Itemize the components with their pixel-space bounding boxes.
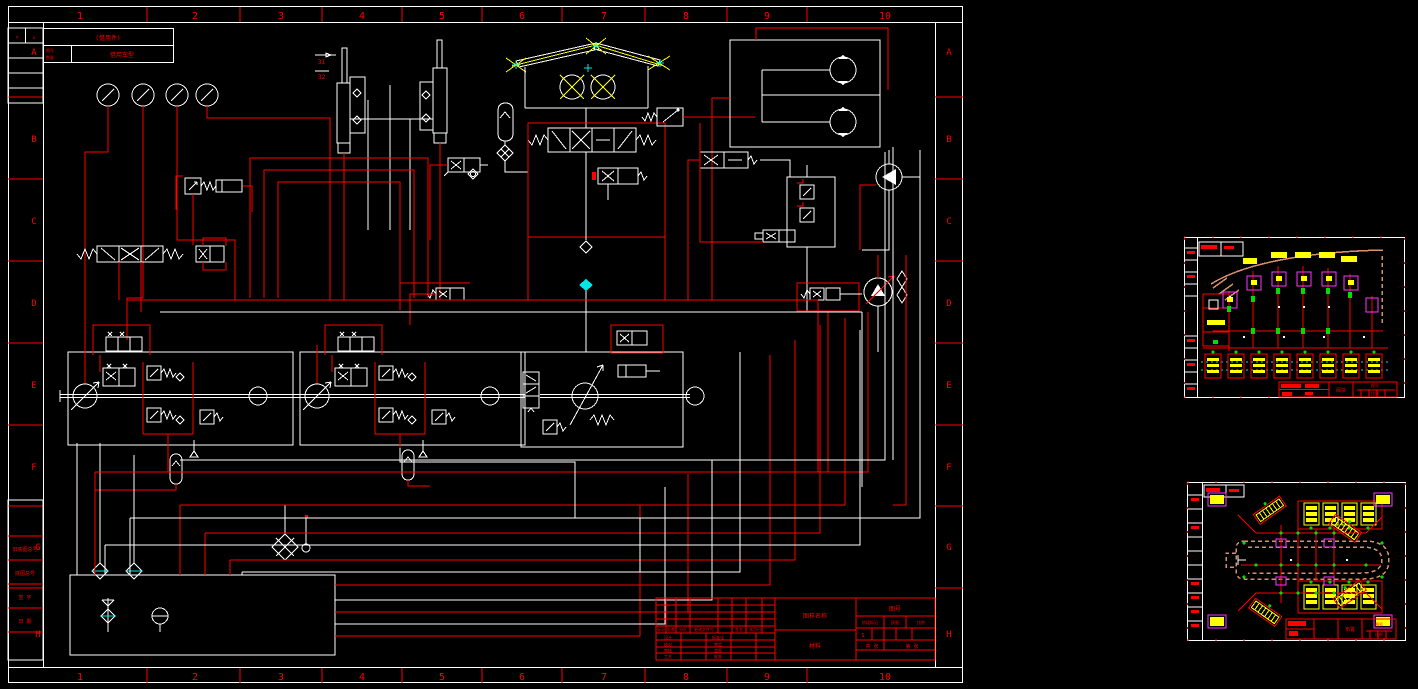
pump-unit-1 <box>60 325 293 472</box>
sign-row-label: 标准化 <box>712 634 724 640</box>
sheet-total: 共 张 <box>865 643 878 650</box>
zone-row-label: B <box>946 135 951 145</box>
zone-col-label: 1 <box>77 11 83 22</box>
main-drawing-canvas[interactable]: 1 2 3 4 5 6 7 8 9 10 1 2 3 4 5 6 7 8 9 1… <box>0 0 965 689</box>
margin-label: 日 期 <box>18 619 31 625</box>
pump-unit-2 <box>292 325 525 460</box>
zone-col-label: 4 <box>359 11 365 22</box>
mini2-scale-label: 比例 <box>1375 631 1383 637</box>
zone-col-label: 9 <box>764 11 770 22</box>
zone-row-label: D <box>946 299 951 309</box>
zone-row-label: E <box>946 381 951 391</box>
crane-mechanism <box>506 38 670 128</box>
pilot-valve-mid <box>400 283 470 325</box>
suspension-cylinder-31: 31 32 <box>315 48 365 300</box>
mini2-title-text: 布置 <box>1345 626 1355 633</box>
margin-arrow-down: ↓ <box>32 34 36 41</box>
pilot-valve-small-left <box>196 238 226 270</box>
directional-valve-left <box>77 246 183 312</box>
hydraulic-motor-icon <box>830 55 856 137</box>
piping-white <box>105 147 920 624</box>
mini-drawing-1-canvas[interactable]: 阀块 图号 比例 <box>1183 236 1409 405</box>
sign-row-label: 设计 <box>664 634 672 640</box>
zone-row-label: A <box>31 48 37 58</box>
reducing-valve-unit <box>176 176 252 245</box>
zone-ruler-bottom: 1 2 3 4 5 6 7 8 9 10 <box>77 672 891 683</box>
return-filter-2 <box>126 455 142 579</box>
sheet-no: 第 张 <box>905 643 918 650</box>
title-no-cell: 图号 <box>889 606 901 613</box>
solenoid-pump-unit <box>797 255 907 472</box>
zone-row-label: G <box>946 543 951 553</box>
zone-col-label: 9 <box>764 672 770 683</box>
rev-header-cell: 分区 <box>679 626 687 632</box>
rev-header-cell: 处数 <box>667 626 675 632</box>
zone-row-label: F <box>946 463 951 473</box>
zone-col-label: 5 <box>439 672 445 683</box>
cylinder-31-label: 31 <box>318 59 326 66</box>
valve-2pos-upper <box>430 158 488 240</box>
borrow-col2: 数量 <box>46 54 54 60</box>
rev-header-cell: 年月日 <box>749 626 761 632</box>
margin-label: 旧底图总号 <box>12 546 37 553</box>
zone-col-label: 8 <box>683 11 689 22</box>
mini2-no-label: 图号 <box>1375 621 1383 627</box>
zone-col-label: 10 <box>879 11 891 22</box>
main-pump <box>862 150 920 250</box>
zone-row-label: D <box>31 299 36 309</box>
mini1-ramp-outline <box>1211 250 1383 326</box>
zone-col-label: 7 <box>601 672 607 683</box>
zone-col-label: 3 <box>278 11 284 22</box>
cylinder-32-label: 32 <box>318 74 326 81</box>
zone-col-label: 5 <box>439 11 445 22</box>
pressure-gauges <box>85 84 330 345</box>
zone-col-label: 2 <box>192 672 198 683</box>
zone-row-label: E <box>31 381 36 391</box>
sign-row-label: 会签 <box>714 647 722 653</box>
return-filter-1 <box>92 443 108 579</box>
zone-col-label: 4 <box>359 672 365 683</box>
scale-value: S <box>861 633 864 639</box>
rev-header-cell: 标记 <box>657 626 665 632</box>
pressure-gauge-icon <box>97 84 218 106</box>
zone-row-label: C <box>946 217 951 227</box>
stage-label: 阶段标记 <box>862 619 878 625</box>
sign-row-label: 审定 <box>714 641 722 647</box>
margin-blocks-top: ↑ ↓ <box>8 28 43 103</box>
zone-col-label: 6 <box>519 672 525 683</box>
pump-unit-3 <box>521 325 704 447</box>
margin-label: 底图总号 <box>15 570 35 577</box>
title-name-cell: 图样名称 <box>803 612 827 620</box>
mini1-scale-label: 比例 <box>1371 390 1379 396</box>
accumulator-1 <box>95 440 198 490</box>
accumulator-2 <box>402 440 430 486</box>
sign-row-label: 批准 <box>714 653 722 659</box>
tank-breather-filter <box>100 598 116 632</box>
aux-valve-center <box>592 168 647 200</box>
sign-row-label: 工艺 <box>664 654 672 659</box>
zone-row-label: C <box>31 217 36 227</box>
borrow-col1: 图号 <box>46 47 54 53</box>
sign-row-label: 审核 <box>664 647 672 653</box>
mini1-components <box>1203 252 1388 351</box>
mini1-title-block: 阀块 图号 比例 <box>1279 382 1397 397</box>
borrow-col3: 借用车型 <box>110 51 134 59</box>
title-block: 标记 处数 分区 更改文件号 签名 年月日 设计 标准化 校对 审定 审核 会签… <box>656 598 935 660</box>
two-position-valve <box>688 152 790 300</box>
zone-col-label: 2 <box>192 11 198 22</box>
sheet-border <box>9 7 963 683</box>
zone-col-label: 3 <box>278 672 284 683</box>
zone-col-label: 7 <box>601 11 607 22</box>
mini2-vehicle-outline <box>1226 541 1389 579</box>
zone-ruler-top: 1 2 3 4 5 6 7 8 9 10 <box>77 11 891 22</box>
margin-label: 签 字 <box>18 594 31 601</box>
motor-frame <box>712 28 888 300</box>
accumulator-main <box>497 103 528 172</box>
tank-level-gauge <box>152 608 168 632</box>
scale-label: 比例 <box>917 619 925 625</box>
borrow-block: (借用件) 图号 数量 借用车型 <box>44 29 174 63</box>
rev-header-cell: 签名 <box>735 626 743 632</box>
zone-col-label: 10 <box>879 672 891 683</box>
mini-drawing-2-canvas[interactable]: 布置 图号 比例 <box>1186 481 1410 648</box>
zone-ruler-right: A B C D E F G H <box>946 48 952 640</box>
mini1-no-label: 图号 <box>1371 382 1379 388</box>
main-directional-valve <box>528 123 665 352</box>
mini2-title-block: 布置 图号 比例 <box>1286 619 1396 639</box>
zone-row-label: B <box>31 135 36 145</box>
rev-header-cell: 更改文件号 <box>694 626 714 632</box>
valve-manifold-right <box>700 123 876 312</box>
zone-col-label: 1 <box>77 672 83 683</box>
sign-row-label: 校对 <box>664 641 672 647</box>
mini1-title-text: 阀块 <box>1336 387 1346 394</box>
zone-row-label: F <box>31 463 36 473</box>
zone-row-label: H <box>946 630 951 640</box>
weight-label: 质量 <box>891 619 899 625</box>
mini1-manifold-row <box>1201 351 1388 379</box>
zone-col-label: 6 <box>519 11 525 22</box>
oil-tank <box>70 443 335 655</box>
borrow-title: (借用件) <box>95 34 120 42</box>
margin-arrow-up: ↑ <box>15 34 19 41</box>
zone-col-label: 8 <box>683 672 689 683</box>
title-material-cell: 材料 <box>809 642 821 650</box>
zone-row-label: A <box>946 48 952 58</box>
